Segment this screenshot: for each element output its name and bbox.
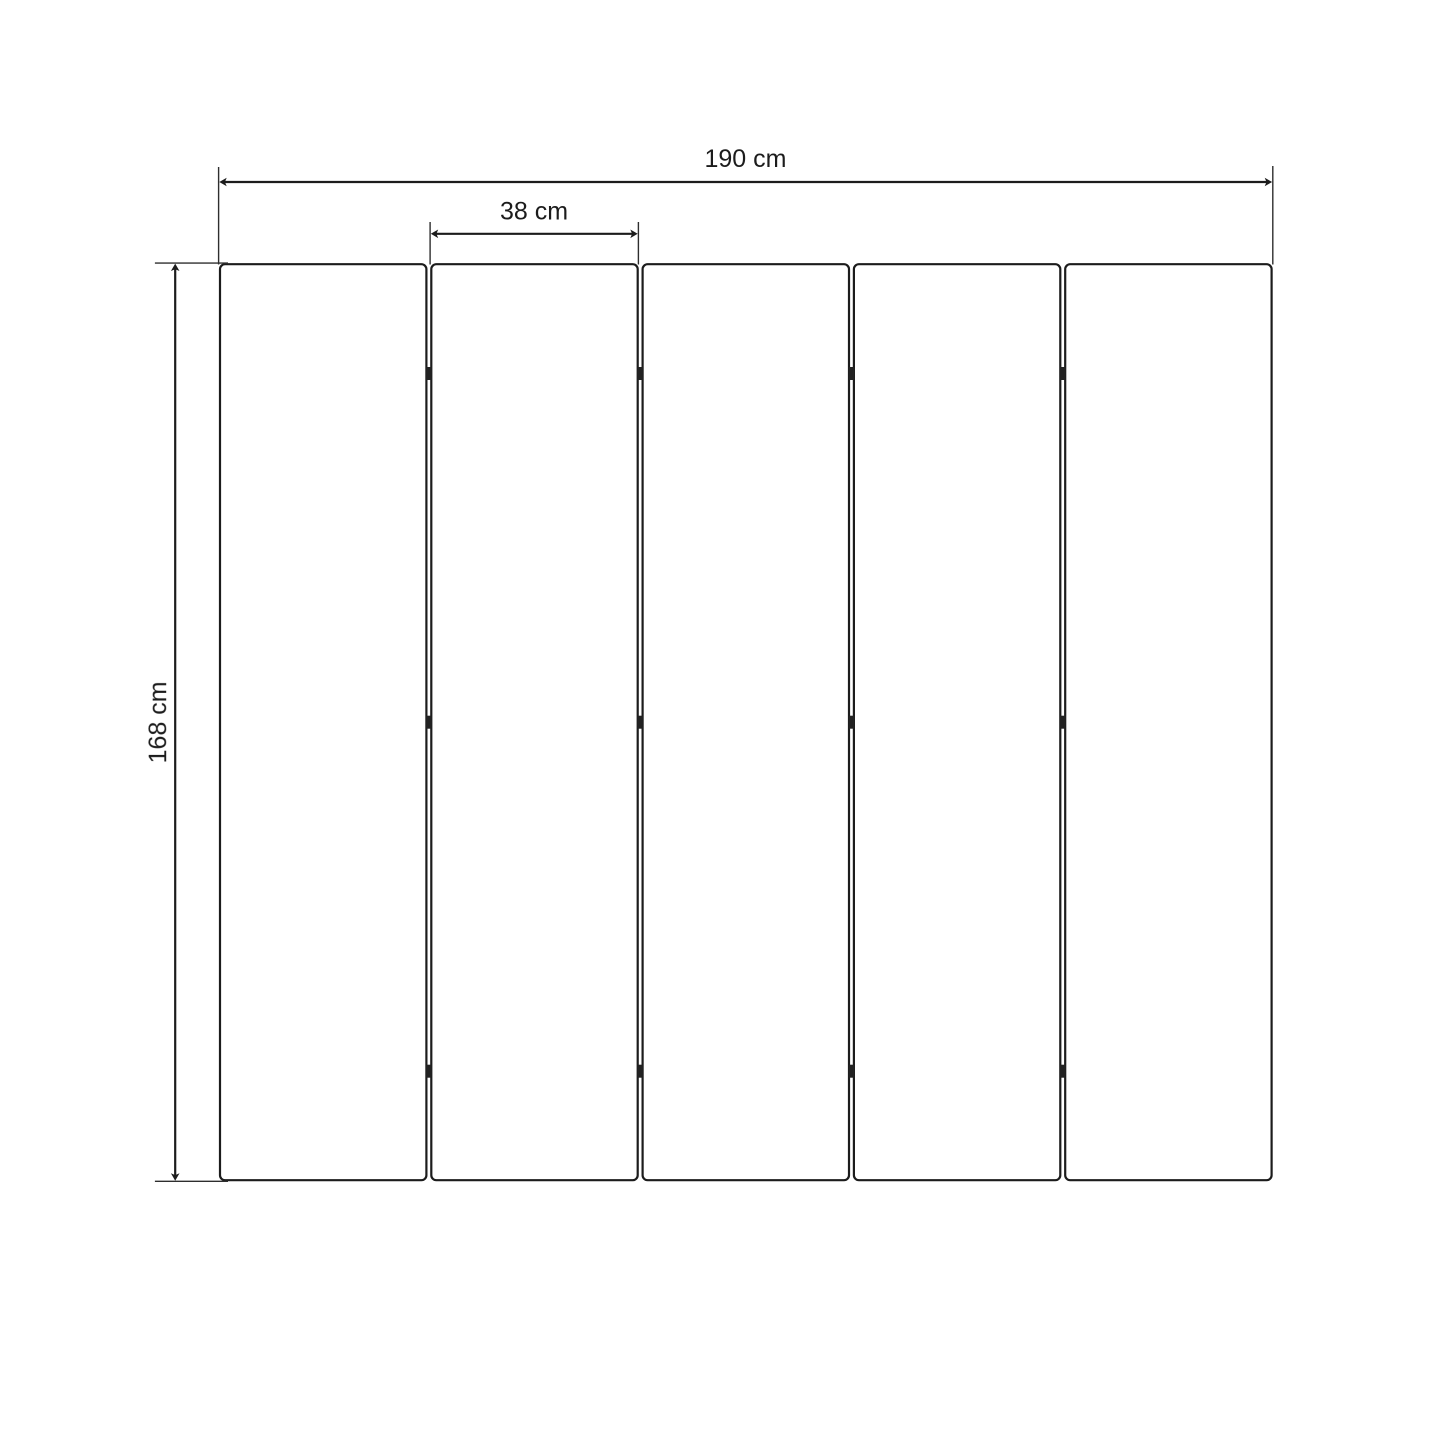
svg-text:190 cm: 190 cm <box>705 145 787 173</box>
svg-text:168 cm: 168 cm <box>144 681 172 763</box>
svg-text:38 cm: 38 cm <box>500 197 568 225</box>
